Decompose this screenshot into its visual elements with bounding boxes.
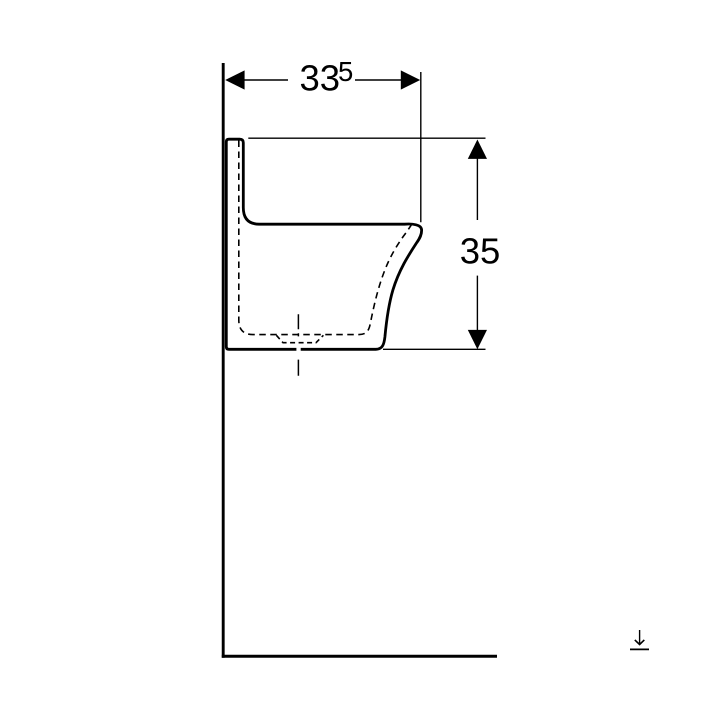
svg-text:5: 5 [338,56,353,87]
svg-text:35: 35 [460,231,501,272]
svg-text:33: 33 [300,57,341,98]
